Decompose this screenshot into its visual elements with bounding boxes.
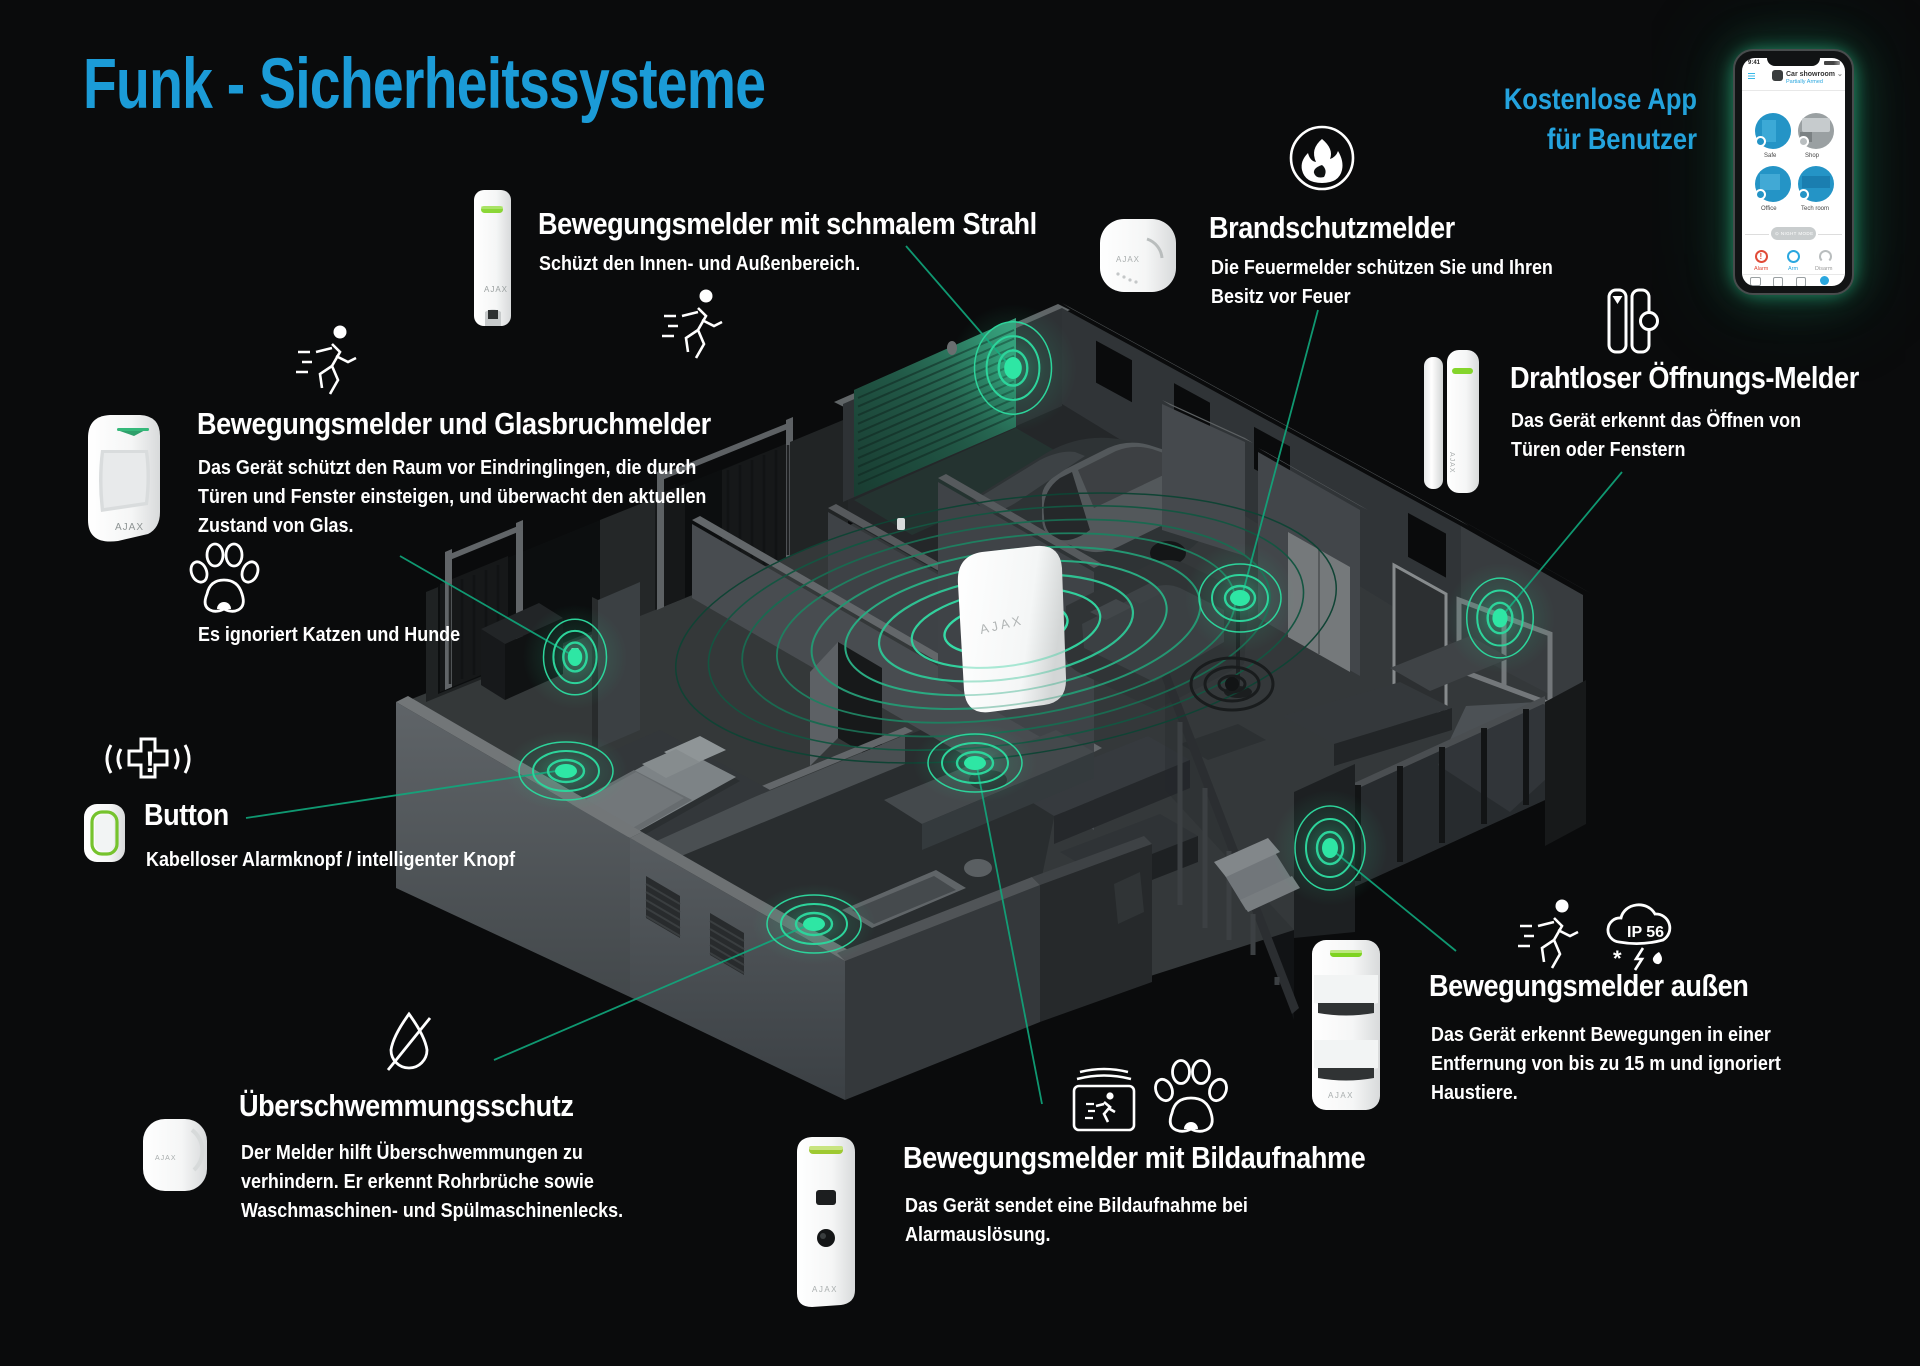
svg-text:AJAX: AJAX <box>1116 255 1140 264</box>
svg-text:AJAX: AJAX <box>1328 1091 1354 1100</box>
svg-text:AJAX: AJAX <box>812 1285 838 1294</box>
svg-text:AJAX: AJAX <box>484 285 508 294</box>
svg-text:AJAX: AJAX <box>1448 452 1455 474</box>
svg-text:!: ! <box>145 746 155 779</box>
svg-text:IP 56: IP 56 <box>1627 924 1664 941</box>
svg-text:*: * <box>1613 946 1622 971</box>
svg-text:AJAX: AJAX <box>155 1155 177 1162</box>
svg-text:AJAX: AJAX <box>115 522 144 533</box>
